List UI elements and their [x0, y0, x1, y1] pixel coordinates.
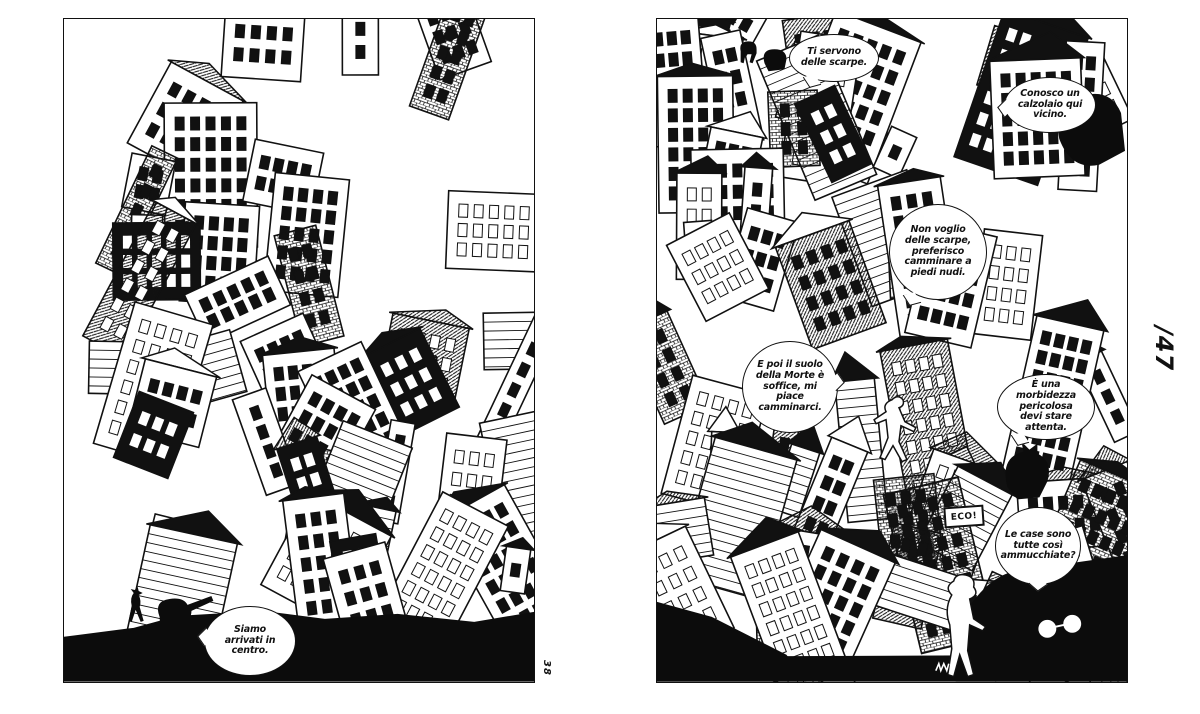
speech-bubble-e-poi: E poi il suolo della Morte è soffice, mi… — [742, 341, 838, 433]
speech-bubble-conosco: Conosco un calzolaio qui vicino. — [1004, 77, 1096, 133]
comic-spread: { "spread": { "page_label": "/47", "left… — [0, 0, 1200, 714]
comic-page-left — [63, 18, 535, 683]
speech-bubble-le-case: Le case sono tutte così ammucchiate? — [995, 507, 1081, 585]
ground-silhouette — [64, 611, 534, 682]
horned-creature-figure — [1006, 442, 1049, 500]
speech-bubble-siamo: Siamo arrivati in centro. — [204, 606, 296, 676]
glasses-lens-left — [1038, 620, 1056, 638]
bubble-text: E poi il suolo della Morte è soffice, mi… — [752, 360, 828, 414]
page-number-label: /47 — [1150, 326, 1178, 371]
speech-bubble-morbidezza: È una morbidezza pericolosa devi stare a… — [997, 374, 1095, 440]
left-page-overlay — [64, 19, 534, 682]
speech-bubble-non-voglio: Non voglio delle scarpe, preferisco camm… — [889, 204, 987, 300]
eco-shop-sign: ECO! — [943, 505, 984, 529]
bubble-text: Ti servono delle scarpe. — [799, 47, 869, 69]
corner-page-mark: 38 — [541, 660, 552, 676]
bubble-text: È una morbidezza pericolosa devi stare a… — [1007, 380, 1085, 434]
bubble-text: Le case sono tutte così ammucchiate? — [1001, 530, 1076, 562]
walking-pair-silhouette — [740, 41, 786, 71]
glasses-lens-right — [1063, 615, 1081, 633]
climbing-woman-figure — [874, 397, 916, 462]
speech-bubble-ti-servono: Ti servono delle scarpe. — [789, 34, 879, 82]
woman-figure — [129, 587, 144, 622]
bubble-text: Siamo arrivati in centro. — [214, 625, 286, 657]
bubble-text: Non voglio delle scarpe, preferisco camm… — [899, 225, 977, 279]
bubble-text: Conosco un calzolaio qui vicino. — [1014, 89, 1086, 121]
